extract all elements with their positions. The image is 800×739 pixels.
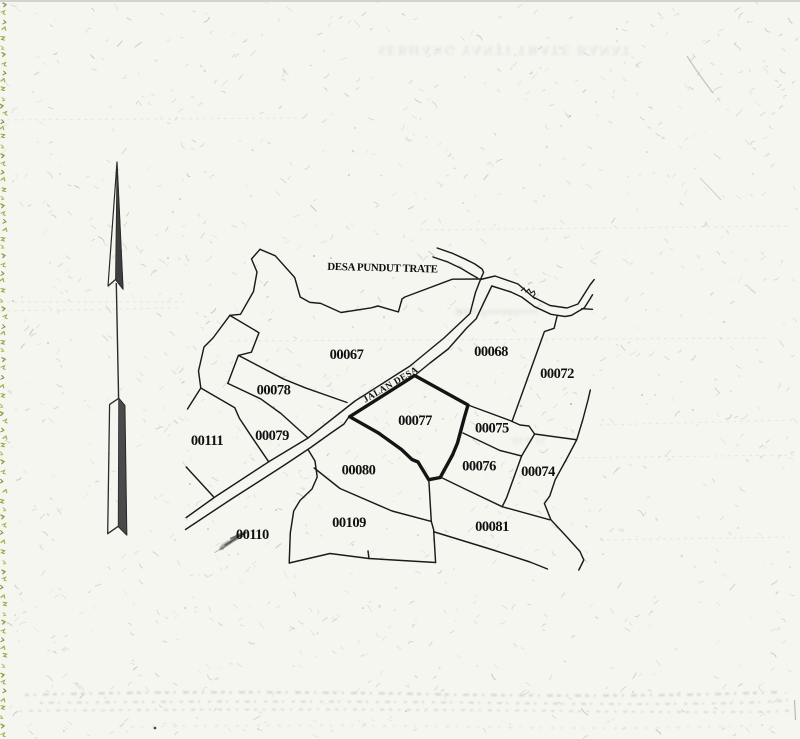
svg-text:00111: 00111 [191, 433, 223, 449]
svg-text:00109: 00109 [332, 515, 366, 531]
svg-text:00110: 00110 [236, 527, 269, 543]
svg-text:-01-0-15: -01-0-15 [510, 434, 545, 445]
svg-text:00081: 00081 [475, 519, 509, 535]
svg-text:00077: 00077 [398, 413, 432, 429]
svg-text:00072: 00072 [540, 366, 574, 382]
svg-text:00068: 00068 [474, 344, 508, 360]
svg-text:00078: 00078 [257, 383, 291, 399]
svg-text:00080: 00080 [342, 463, 376, 479]
svg-text:00067: 00067 [330, 347, 364, 363]
svg-text:00076: 00076 [462, 459, 496, 475]
svg-text:00074: 00074 [521, 464, 555, 480]
svg-text:SEBHANG YANTI TRATE BANAT: SEBHANG YANTI TRATE BANAT [378, 42, 633, 57]
svg-text:00079: 00079 [255, 428, 289, 444]
svg-text:00075: 00075 [475, 420, 509, 436]
